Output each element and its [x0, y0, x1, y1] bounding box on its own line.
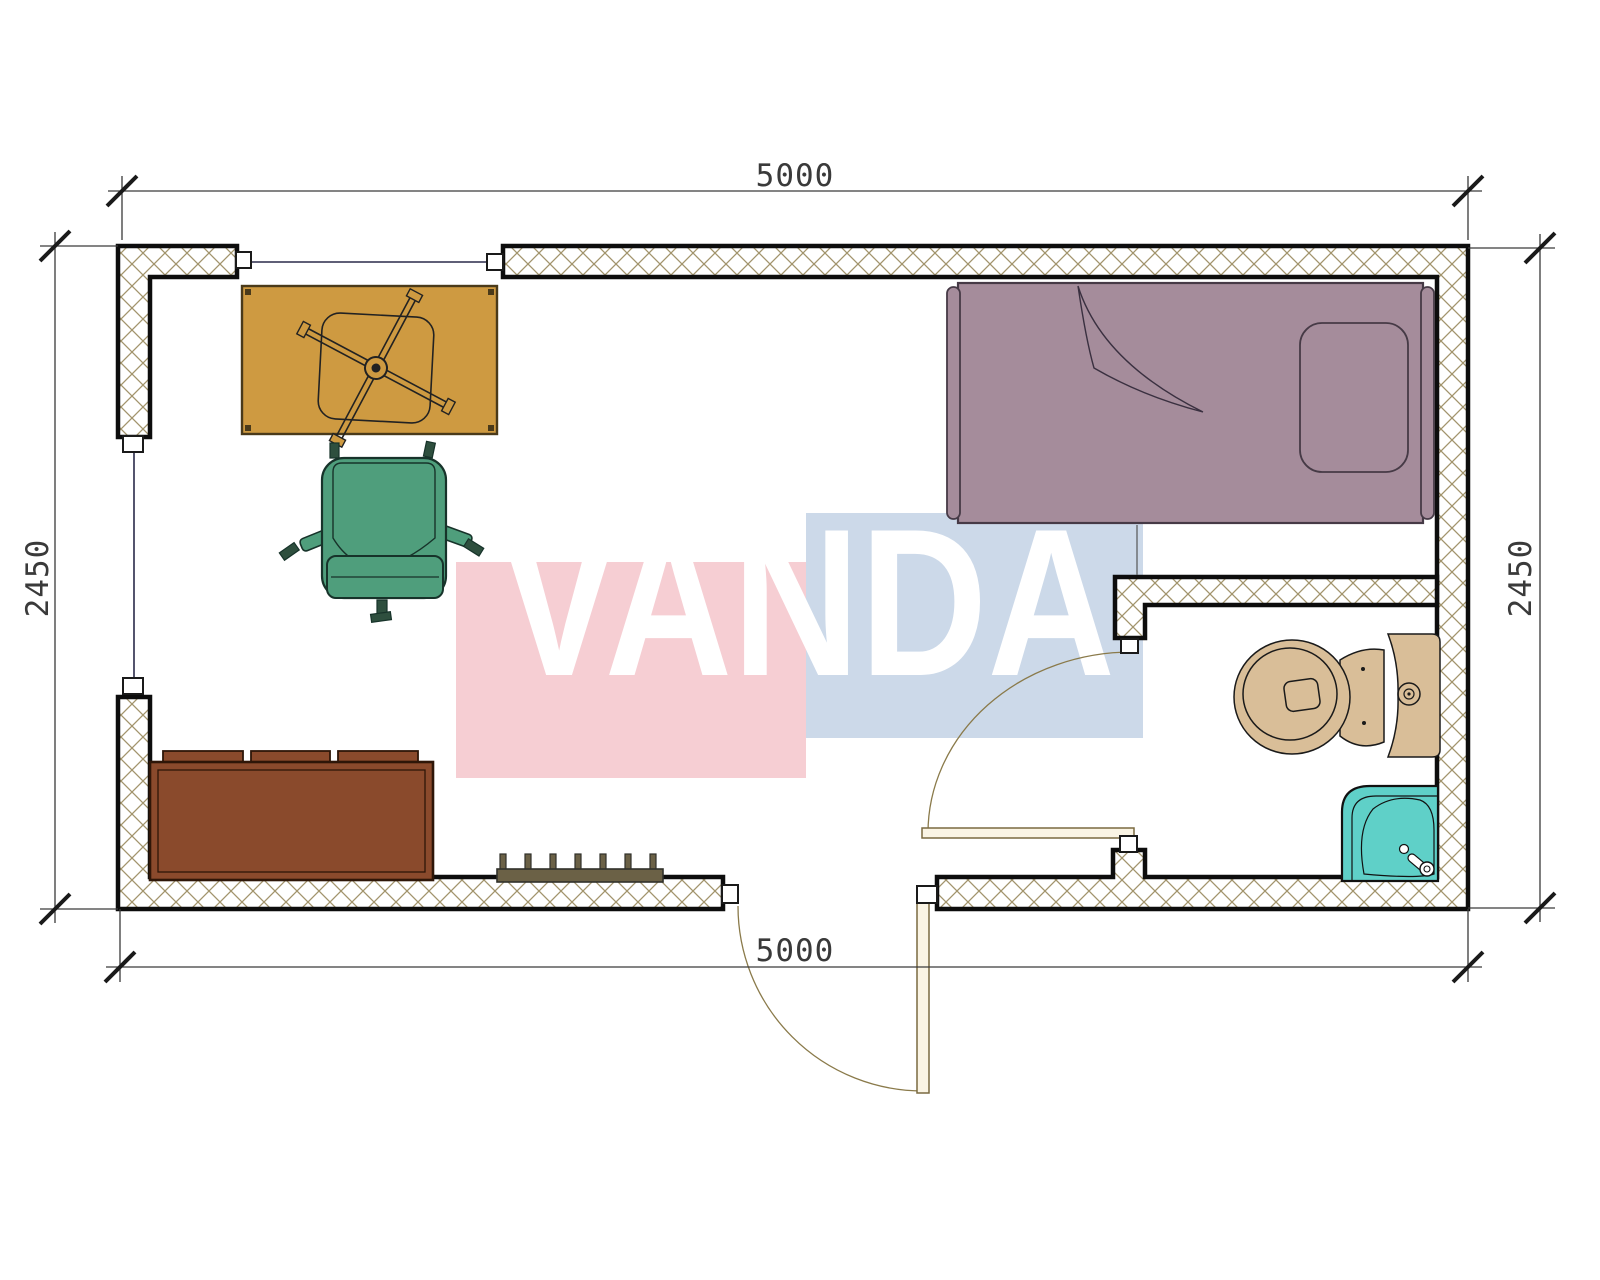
entry-door-jamb-left [722, 885, 738, 903]
top-window-jamb-left [236, 252, 251, 268]
top-window-jamb-right [487, 254, 503, 270]
shower-drain-icon [1400, 845, 1409, 854]
bottom-dimension-label: 5000 [756, 933, 835, 969]
radiator-body [497, 869, 663, 882]
watermark: VANDA [456, 485, 1143, 778]
floor-plan-page: VANDA [0, 0, 1600, 1280]
bathroom-door-leaf [922, 828, 1134, 838]
floor-plan-drawing: VANDA [0, 0, 1600, 1280]
top-dimension-label: 5000 [756, 158, 835, 194]
bed-left-bolster [947, 287, 960, 519]
bed-mattress [958, 283, 1423, 523]
right-dimension-label: 2450 [1503, 539, 1539, 618]
left-window-jamb-top [123, 436, 143, 452]
entry-door-jamb-right [917, 886, 937, 903]
sofa [150, 751, 433, 880]
left-window-jamb-bottom [123, 678, 143, 694]
bathroom-door-jamb-top [1121, 639, 1138, 653]
shower-mixer-knob-icon [1420, 862, 1434, 876]
entry-door-leaf [917, 903, 929, 1093]
toilet-flush-button [1283, 678, 1321, 712]
sofa-body [150, 762, 433, 880]
bathroom-door-jamb-bottom [1120, 836, 1137, 852]
left-dimension-label: 2450 [20, 539, 56, 618]
bed-right-bolster [1421, 287, 1434, 519]
shower-tray [1342, 786, 1438, 881]
